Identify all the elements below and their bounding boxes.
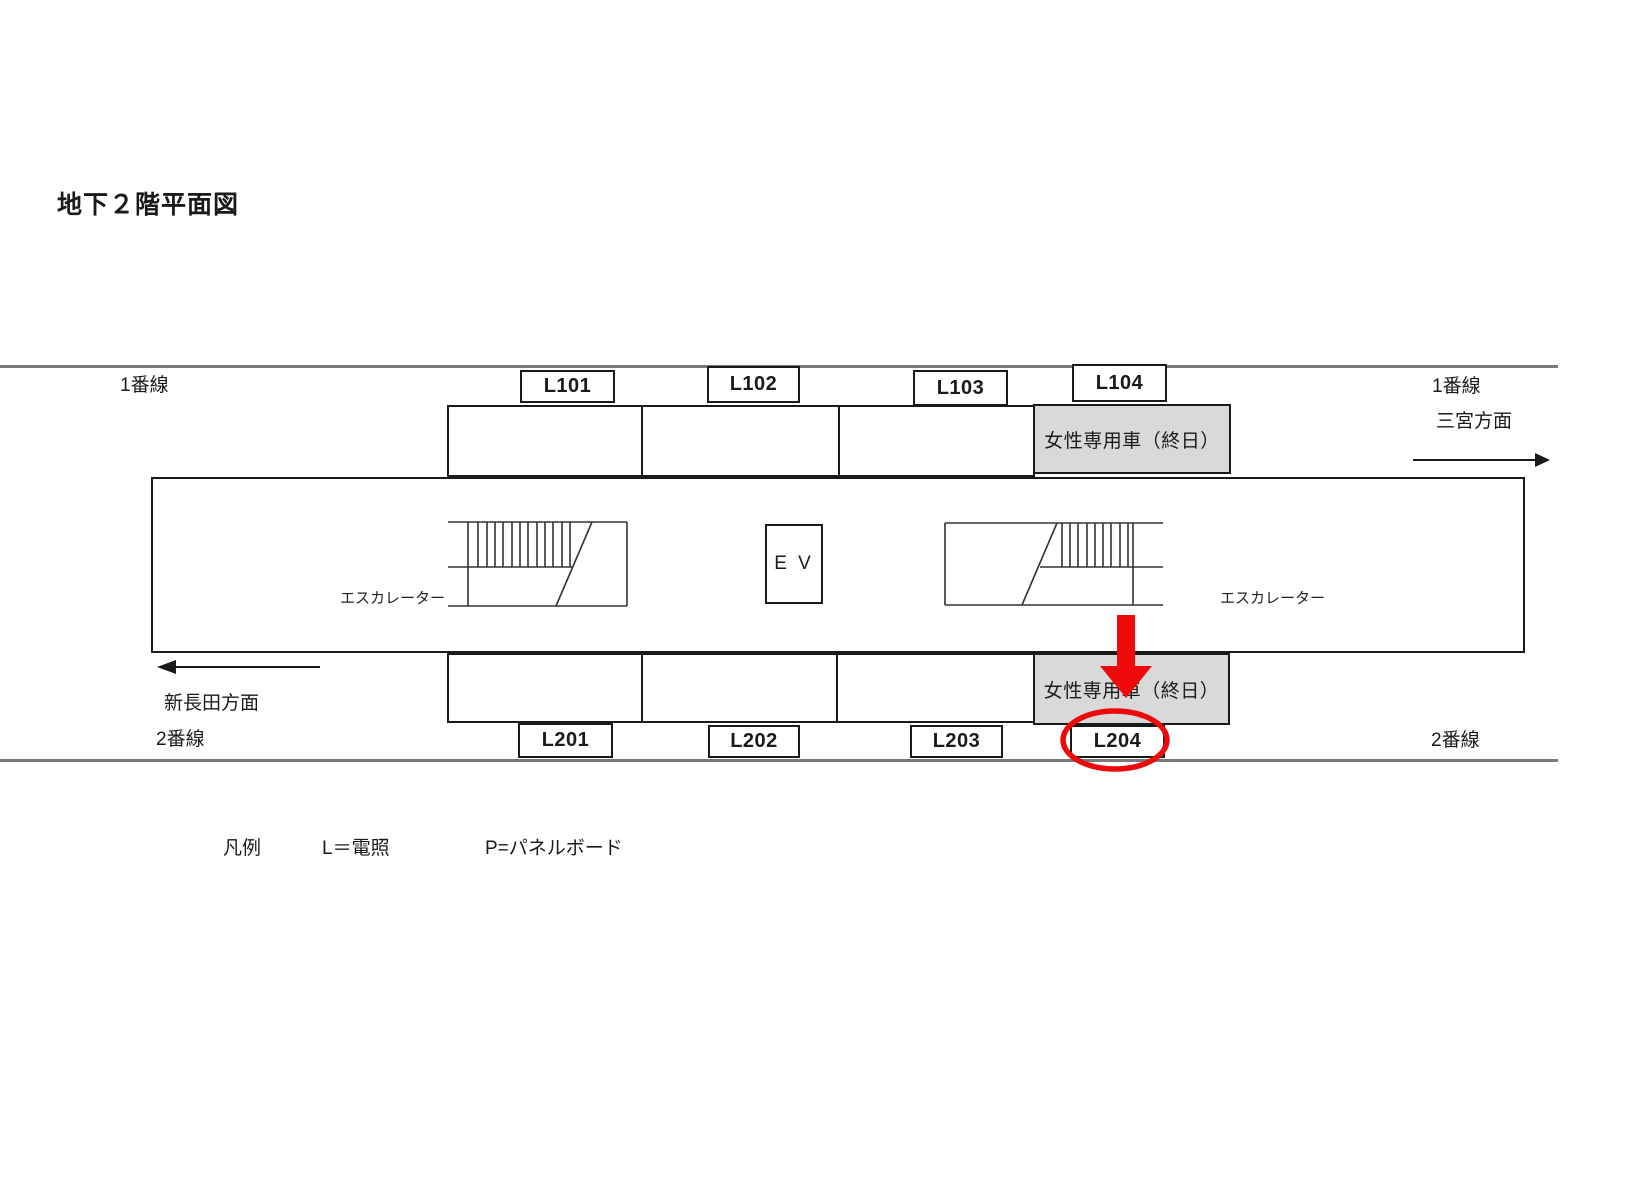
womens-only-car-top-label: 女性専用車（終日） — [1044, 426, 1220, 453]
light-sign-l102: L102 — [707, 366, 800, 403]
elevator-label: E V — [774, 553, 814, 575]
platform-body — [151, 477, 1525, 653]
light-sign-l101-label: L101 — [544, 375, 592, 398]
light-sign-l202-label: L202 — [730, 730, 778, 753]
car-box-top-1 — [447, 405, 643, 477]
light-sign-l204: L204 — [1070, 725, 1165, 758]
car-box-top-2 — [641, 405, 840, 477]
legend-heading: 凡例 — [223, 838, 261, 861]
direction-arrow-right — [1413, 453, 1550, 467]
floor-plan-page: 地下２階平面図 1番線 1番線 三宮方面 新長田方面 2番線 2番線 E V エ… — [0, 0, 1636, 1187]
light-sign-l103: L103 — [913, 370, 1008, 406]
car-box-top-3 — [838, 405, 1035, 477]
elevator-box: E V — [765, 524, 823, 604]
direction-arrow-left — [157, 660, 320, 674]
legend-item-l: L＝電照 — [322, 838, 390, 861]
womens-only-car-bottom-label: 女性専用車（終日） — [1044, 676, 1220, 703]
light-sign-l202: L202 — [708, 725, 800, 758]
direction-label-shinnagata: 新長田方面 — [164, 693, 259, 716]
light-sign-l102-label: L102 — [730, 373, 778, 396]
light-sign-l101: L101 — [520, 370, 615, 403]
car-box-bottom-3 — [836, 653, 1035, 723]
womens-only-car-top: 女性専用車（終日） — [1033, 404, 1231, 474]
light-sign-l201: L201 — [518, 723, 613, 758]
light-sign-l203: L203 — [910, 725, 1003, 758]
light-sign-l203-label: L203 — [933, 730, 981, 753]
light-sign-l104: L104 — [1072, 364, 1167, 402]
track1-label-left: 1番線 — [120, 375, 169, 398]
womens-only-car-bottom: 女性専用車（終日） — [1033, 653, 1230, 725]
light-sign-l204-label: L204 — [1094, 730, 1142, 753]
light-sign-l104-label: L104 — [1096, 372, 1144, 395]
light-sign-l103-label: L103 — [937, 377, 985, 400]
track1-label-right: 1番線 — [1432, 376, 1481, 399]
direction-label-sannomiya: 三宮方面 — [1436, 411, 1512, 434]
escalator-label-left: エスカレーター — [340, 591, 445, 606]
legend-item-p: P=パネルボード — [485, 838, 623, 861]
car-box-bottom-1 — [447, 653, 643, 723]
car-box-bottom-2 — [641, 653, 838, 723]
escalator-label-right: エスカレーター — [1220, 591, 1325, 606]
light-sign-l201-label: L201 — [542, 729, 590, 752]
track2-label-left: 2番線 — [156, 729, 205, 752]
track2-label-right: 2番線 — [1431, 730, 1480, 753]
page-title: 地下２階平面図 — [57, 193, 239, 218]
